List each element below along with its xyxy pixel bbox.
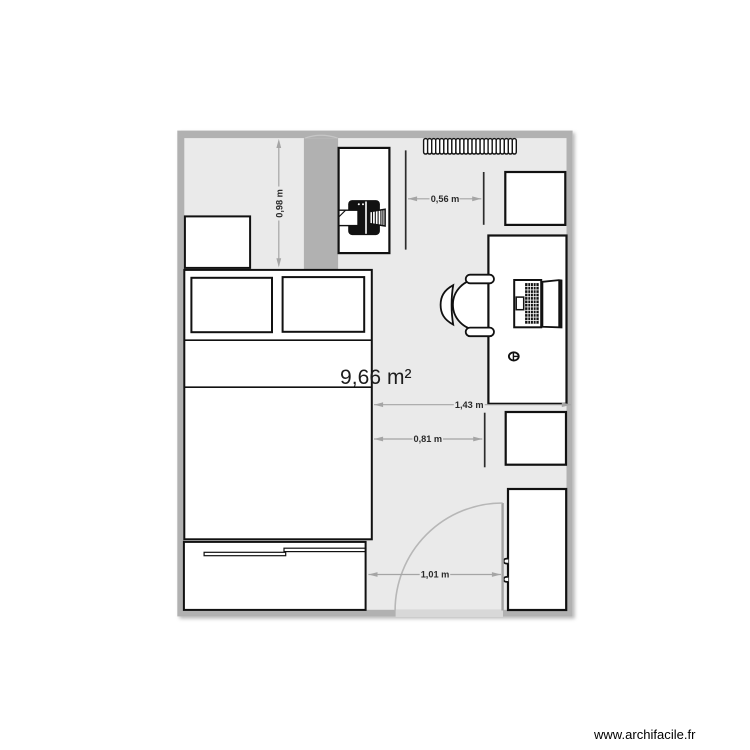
svg-text:0,56 m: 0,56 m [431,194,460,204]
svg-text:9,66 m²: 9,66 m² [340,366,412,389]
svg-text:www.archifacile.fr: www.archifacile.fr [593,727,696,742]
svg-text:0,81 m: 0,81 m [413,434,442,444]
svg-text:1,43 m: 1,43 m [455,400,484,410]
svg-text:1,01 m: 1,01 m [421,570,450,580]
svg-text:0,98 m: 0,98 m [275,189,285,218]
